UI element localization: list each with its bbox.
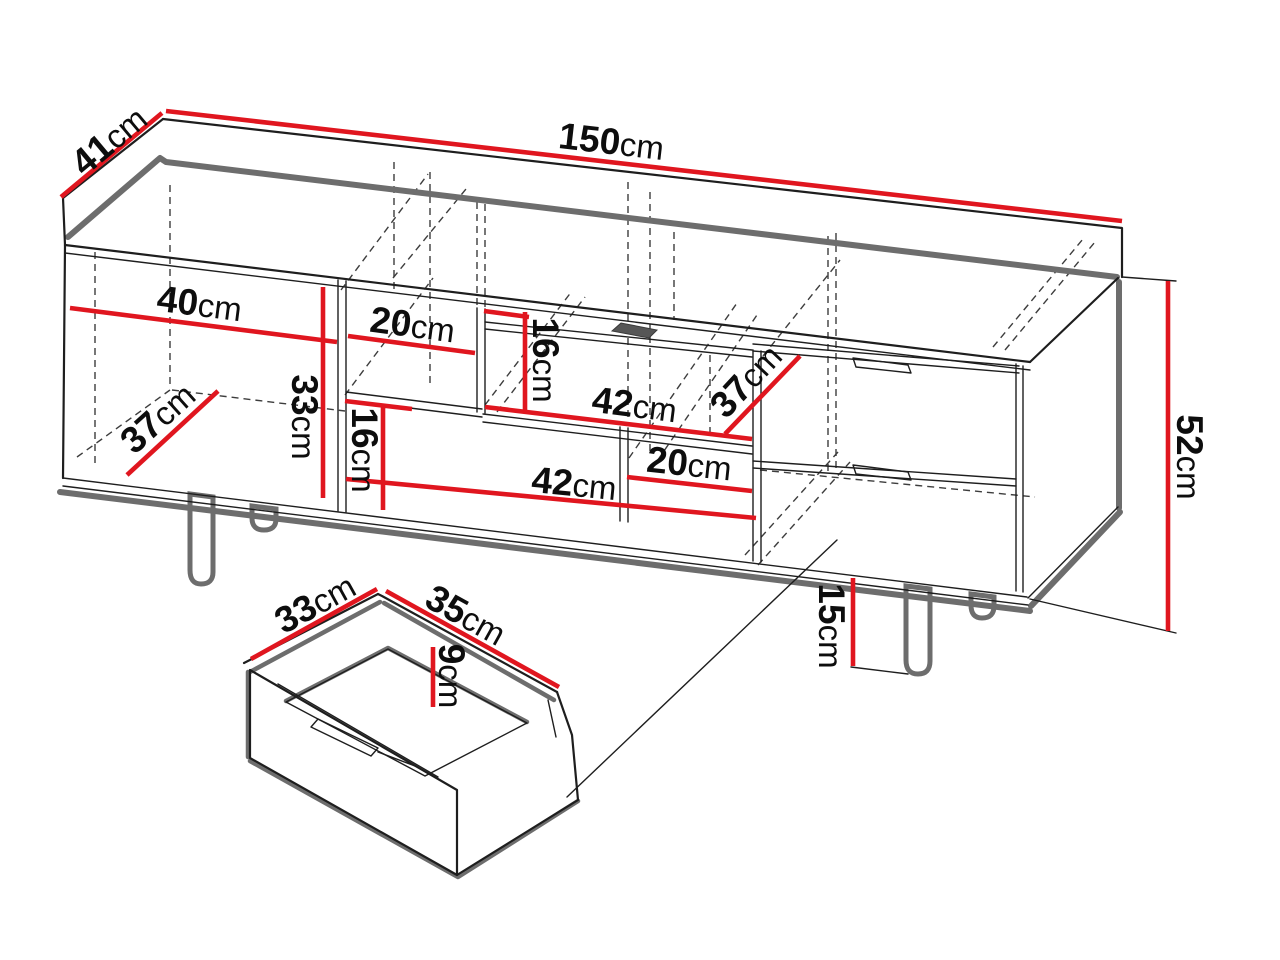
label-door-height: 33cm <box>284 374 325 459</box>
drawer-front-panel <box>250 670 457 875</box>
label-open-shelf-height: 16cm <box>344 407 385 492</box>
label-drawer-depth: 33cm <box>268 564 362 641</box>
hidden-edge <box>1005 242 1095 350</box>
hidden-edges <box>77 162 1095 565</box>
hidden-edge <box>993 239 1083 347</box>
right-side-top-edge <box>1030 278 1118 362</box>
right-side-bottom-edge <box>1031 512 1120 606</box>
divider-left <box>338 280 346 512</box>
furniture-dimension-diagram: 41cm 150cm 40cm 37cm 33cm 20cm 16cm 42cm… <box>0 0 1280 960</box>
hidden-edge <box>745 452 838 555</box>
drawer-leader-line <box>567 540 837 797</box>
right-side-bottom <box>1028 507 1118 598</box>
drawer-front-inner-top <box>278 684 438 777</box>
leg-ref-bottom <box>851 667 908 674</box>
label-leg-height: 15cm <box>811 583 852 668</box>
label-drawer-height: 9cm <box>431 644 472 709</box>
divider-top-shelf <box>477 308 485 413</box>
top-rim-inner-edge <box>68 158 1117 277</box>
drawer-top-edge <box>753 344 1019 373</box>
diagram-canvas: 41cm 150cm 40cm 37cm 33cm 20cm 16cm 42cm… <box>0 0 1280 960</box>
drawer-right-inner <box>548 700 556 737</box>
extension-lines <box>567 277 1176 797</box>
dimension-labels: 41cm 150cm 40cm 37cm 33cm 20cm 16cm 42cm… <box>63 97 1210 708</box>
left-front-edge <box>63 245 65 478</box>
height-ref-top <box>1122 277 1176 281</box>
label-total-height: 52cm <box>1169 414 1210 499</box>
hidden-edge <box>760 470 1035 497</box>
label-open-shelf-width: 42cm <box>530 459 619 508</box>
label-top-shelf-height: 16cm <box>525 317 566 402</box>
drawer-outer-shadow <box>248 672 578 877</box>
height-ref-bottom <box>1030 599 1176 633</box>
